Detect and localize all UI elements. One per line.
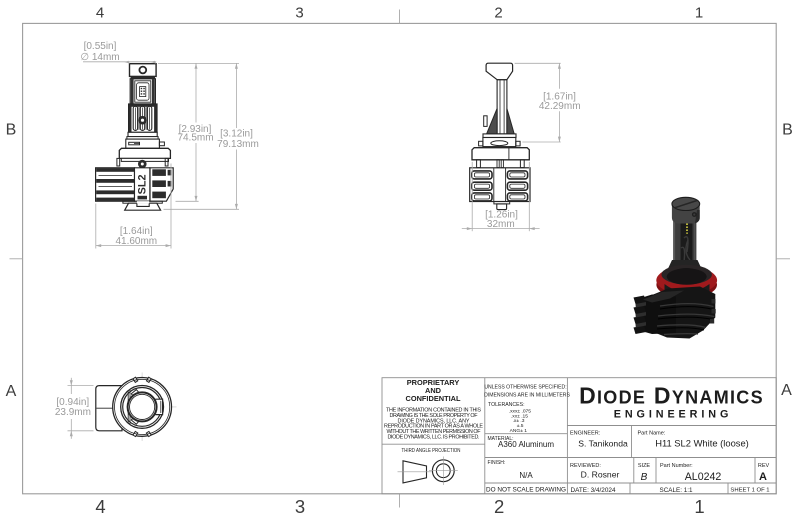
svg-text:N/A: N/A	[519, 471, 533, 480]
svg-text:1: 1	[694, 496, 704, 517]
svg-text:SHEET 1 OF 1: SHEET 1 OF 1	[730, 488, 769, 494]
svg-text:A360 Aluminum: A360 Aluminum	[498, 440, 554, 449]
svg-text:REVIEWED:: REVIEWED:	[570, 463, 601, 469]
svg-text:REV: REV	[758, 463, 770, 469]
svg-text:41.60mm: 41.60mm	[115, 236, 157, 247]
svg-text:A: A	[781, 382, 792, 399]
svg-text:SL2: SL2	[136, 174, 148, 194]
svg-text:[3.12in]: [3.12in]	[220, 128, 253, 139]
svg-text:Part Name:: Part Name:	[638, 430, 666, 436]
svg-text:ENGINEER:: ENGINEER:	[570, 430, 601, 436]
svg-text:UNLESS OTHERWISE SPECIFIED:: UNLESS OTHERWISE SPECIFIED:	[484, 385, 566, 391]
svg-text:D. Rosner: D. Rosner	[581, 470, 620, 480]
svg-text:DATE: 3/4/2024: DATE: 3/4/2024	[571, 487, 616, 494]
svg-text:B: B	[6, 122, 17, 139]
svg-text:1: 1	[695, 4, 703, 21]
svg-text:A: A	[6, 383, 17, 400]
svg-text:4: 4	[96, 4, 104, 21]
svg-text:CONFIDENTIAL: CONFIDENTIAL	[405, 394, 461, 403]
svg-text:2: 2	[494, 4, 502, 21]
svg-text:DIODE DYNAMICS, LLC. IS PROHIB: DIODE DYNAMICS, LLC. IS PROHIBITED.	[388, 435, 480, 441]
svg-text:DO NOT SCALE DRAWING: DO NOT SCALE DRAWING	[486, 487, 566, 494]
svg-text:3: 3	[295, 4, 303, 21]
svg-text:ANG± 1: ANG± 1	[510, 428, 528, 434]
svg-text:79.13mm: 79.13mm	[217, 139, 259, 150]
svg-text:S. Tanikonda: S. Tanikonda	[578, 439, 628, 449]
svg-text:2: 2	[494, 496, 504, 517]
svg-text:SIZE: SIZE	[638, 463, 651, 469]
svg-text:DIMENSIONS ARE IN MILLIMETERS: DIMENSIONS ARE IN MILLIMETERS	[484, 393, 570, 399]
svg-text:SCALE: 1:1: SCALE: 1:1	[660, 487, 693, 494]
svg-text:32mm: 32mm	[487, 219, 515, 230]
svg-text:B: B	[641, 472, 648, 483]
svg-text:42.29mm: 42.29mm	[539, 101, 581, 112]
svg-text:ENGINEERING: ENGINEERING	[614, 409, 733, 421]
svg-text:THIRD ANGLE PROJECTION: THIRD ANGLE PROJECTION	[402, 448, 461, 454]
svg-text:∅ 14mm: ∅ 14mm	[80, 52, 119, 63]
svg-text:FINISH:: FINISH:	[488, 460, 506, 466]
svg-text:74.5mm: 74.5mm	[177, 132, 213, 143]
svg-text:3: 3	[295, 496, 305, 517]
svg-text:[0.55in]: [0.55in]	[84, 41, 117, 52]
svg-text:4: 4	[95, 496, 105, 517]
svg-text:Part Number:: Part Number:	[660, 463, 693, 469]
svg-text:A: A	[759, 471, 767, 483]
svg-text:B: B	[782, 122, 793, 139]
svg-text:AL0242: AL0242	[685, 471, 722, 483]
svg-text:23.9mm: 23.9mm	[55, 407, 91, 418]
svg-text:TOLERANCES:: TOLERANCES:	[488, 402, 525, 408]
svg-text:H11 SL2 White (loose): H11 SL2 White (loose)	[655, 438, 749, 449]
